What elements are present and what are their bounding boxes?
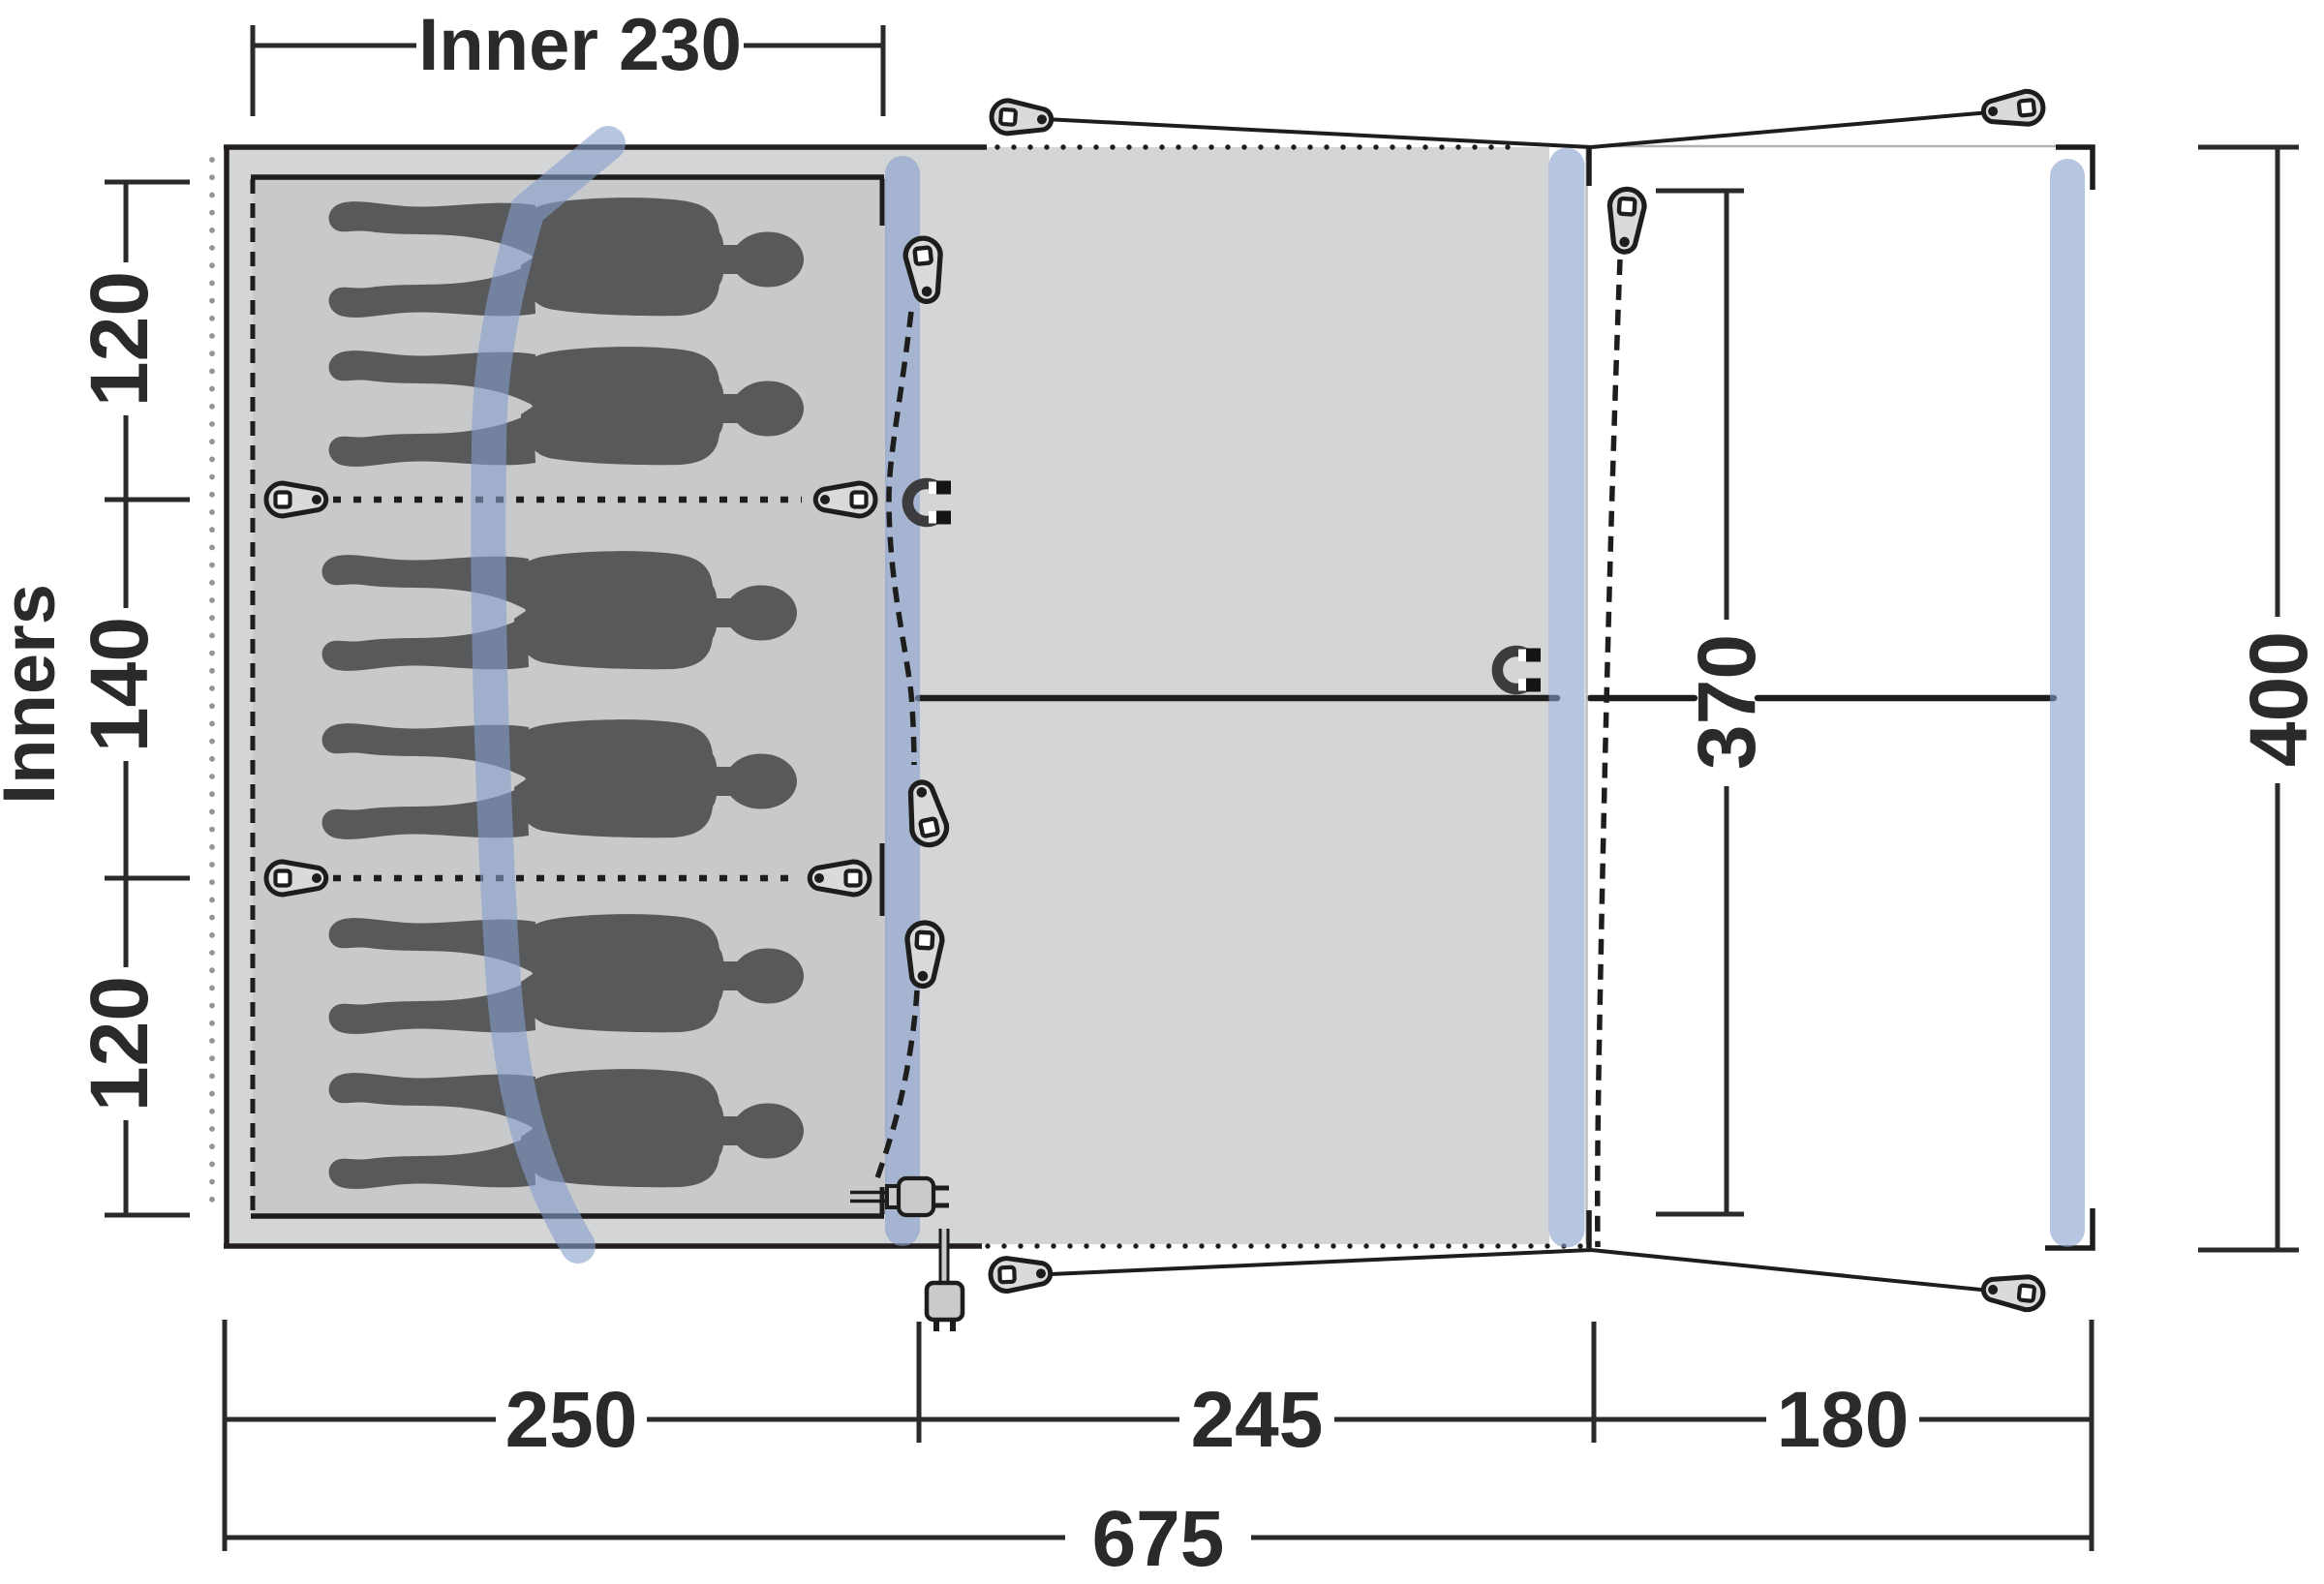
svg-text:245: 245	[1191, 1376, 1324, 1464]
svg-text:120: 120	[74, 271, 165, 407]
svg-text:250: 250	[505, 1376, 638, 1464]
svg-text:120: 120	[74, 976, 165, 1112]
svg-text:180: 180	[1777, 1376, 1910, 1464]
svg-text:675: 675	[1092, 1495, 1225, 1583]
svg-text:Inner 230: Inner 230	[418, 4, 742, 86]
svg-text:Inners: Inners	[0, 584, 71, 805]
svg-text:140: 140	[74, 617, 165, 752]
svg-text:370: 370	[1681, 634, 1772, 770]
svg-text:400: 400	[2233, 631, 2324, 767]
